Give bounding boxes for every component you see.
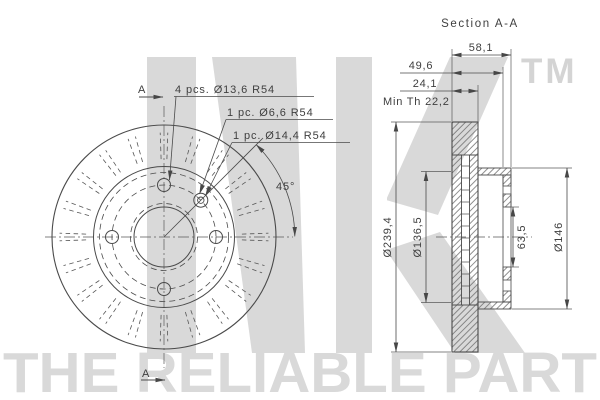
dim-outer-diameter: Ø239,4	[382, 217, 394, 258]
nk-logo-n-cut	[196, 86, 213, 256]
hat-top-flange	[478, 168, 511, 175]
dim-inner-height: 49,6	[409, 60, 434, 72]
nk-logo-n-left-stem	[147, 57, 196, 353]
dim-thickness: 24,1	[413, 78, 438, 90]
dim-min-thickness: Min Th 22,2	[383, 96, 450, 108]
dim-hub-diameter: Ø146	[553, 222, 565, 252]
nk-logo-k-cut	[374, 80, 387, 330]
angle-45-label: 45°	[276, 181, 295, 193]
hat-wall-seg-4	[503, 291, 511, 302]
tm-watermark: TM	[521, 52, 578, 91]
dim-bore-diameter: 63,5	[516, 225, 528, 250]
pin-large-label: 1 pc. Ø14,4 R54	[233, 130, 327, 142]
bolt-holes-label: 4 pcs. Ø13,6 R54	[175, 84, 275, 96]
outboard-plate	[452, 155, 462, 305]
rim-bottom-solid	[452, 305, 478, 352]
inboard-plate	[470, 155, 479, 305]
pin-small-label: 1 pc. Ø6,6 R54	[227, 107, 314, 119]
nk-logo-watermark: TM	[147, 52, 578, 353]
rim-top-solid	[452, 122, 478, 155]
brake-disc-technical-drawing: TM THE RELIABLE PART 4 pcs. Ø13,6 R54 1 …	[0, 0, 600, 400]
hat-bottom-flange	[478, 302, 511, 309]
drawing-canvas: TM THE RELIABLE PART 4 pcs. Ø13,6 R54 1 …	[0, 0, 600, 400]
hat-wall-seg-1	[503, 175, 511, 186]
hat-wall-seg-3	[503, 267, 511, 280]
tagline-watermark: THE RELIABLE PART	[3, 341, 597, 400]
hat-section	[478, 168, 511, 309]
section-title: Section A-A	[441, 18, 519, 30]
dim-total-height: 58,1	[469, 42, 494, 54]
nk-logo-k-upper-arm	[386, 57, 508, 215]
section-marker-top-label: A	[138, 84, 146, 96]
hat-wall-seg-2	[503, 194, 511, 207]
nk-logo-k-stem	[336, 57, 372, 353]
dim-friction-inner-diameter: Ø136,5	[412, 217, 424, 258]
section-marker-bottom-label: A	[142, 368, 150, 380]
